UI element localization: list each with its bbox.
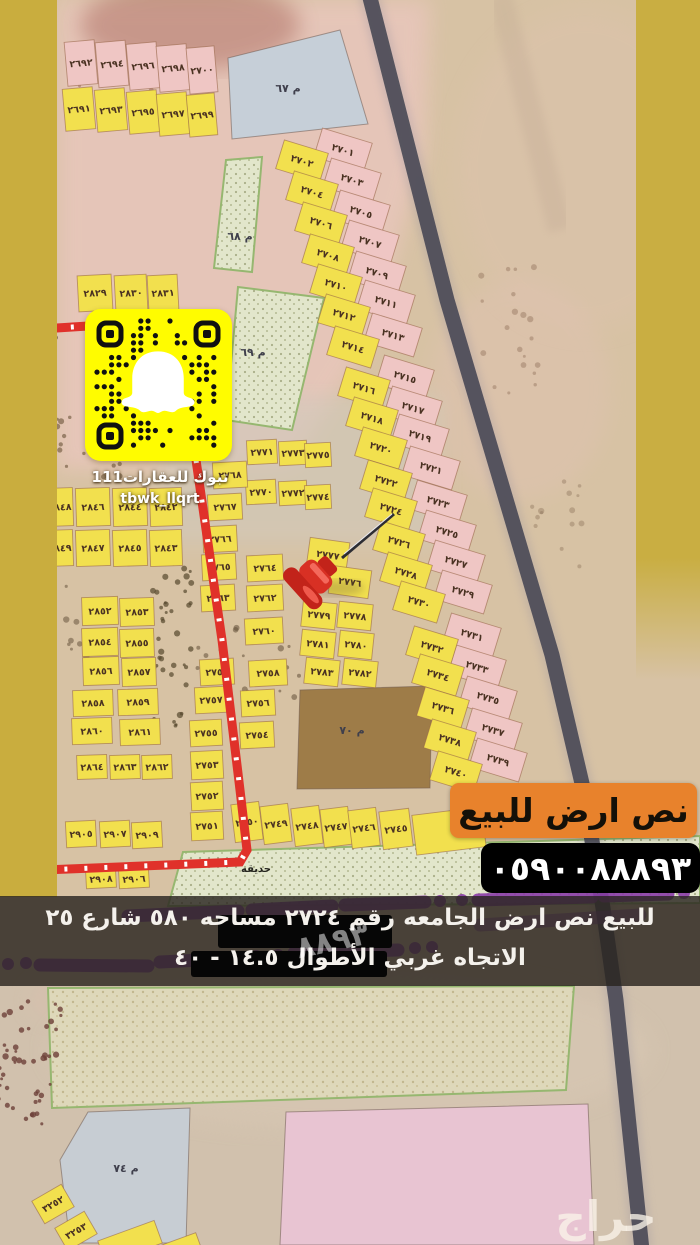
parcel-number: ٢٦٩١ xyxy=(67,103,91,116)
parcel-number: ٢٧٦٠ xyxy=(252,626,276,638)
parcel-number: ٢٧٦٢ xyxy=(253,593,277,605)
parcel-number: ٢٨٥٤ xyxy=(88,637,112,649)
parcel-number: ٢٧٥١ xyxy=(195,821,219,833)
parcel-٢٨٦٣: ٢٨٦٣ xyxy=(110,754,141,779)
parcel-٢٦٩٨: ٢٦٩٨ xyxy=(156,44,190,92)
parcel-٢٧٥٣: ٢٧٥٣ xyxy=(190,750,223,780)
parcel-٢٨٤٧: ٢٨٤٧ xyxy=(75,529,110,566)
parcel-number: ٢٨٢٩ xyxy=(83,288,107,300)
parcel-number: ٢٨٤٣ xyxy=(154,543,178,555)
parcel-٢٧٧٨: ٢٧٧٨ xyxy=(337,601,374,630)
parcel-number: ٢٩٠٧ xyxy=(103,829,127,841)
parcel-٢٩٠٧: ٢٩٠٧ xyxy=(99,820,130,848)
parcel-٢٨٦٠: ٢٨٦٠ xyxy=(72,717,113,744)
parcel-number: ٢٧٧٥ xyxy=(306,450,330,462)
parcel-number: ٢٨٥٣ xyxy=(125,607,149,619)
area-label: م ٦٧ xyxy=(275,82,300,95)
parcel-number: ٢٨٦٤ xyxy=(80,762,104,774)
snapchat-account-name: تبوك للعقارات111 xyxy=(60,468,260,486)
parcel-map: م ٦٧م ٦٨م ٦٩م ٧٠م ٧٤ ٢٦٩٢٢٦٩٤٢٦٩٦٢٦٩٨٢٧٠… xyxy=(0,0,700,1245)
parcel-٢٦٩٩: ٢٦٩٩ xyxy=(186,93,218,137)
parcel-number: ٢٨٥٦ xyxy=(89,666,113,678)
parcel-٢٧٠٠: ٢٧٠٠ xyxy=(186,46,218,94)
parcel-٢٧٤٥: ٢٧٤٥ xyxy=(379,808,413,849)
parcel-٢٦٩٧: ٢٦٩٧ xyxy=(156,92,190,136)
parcel-٢٧٤٨: ٢٧٤٨ xyxy=(291,805,323,846)
parcel-٢٨٥٩: ٢٨٥٩ xyxy=(118,688,159,715)
parcel-number: ٢٨٥٢ xyxy=(88,606,112,618)
parcel-٢٦٩٥: ٢٦٩٥ xyxy=(126,90,160,134)
parcel-number: ٢٦٩٦ xyxy=(131,60,155,73)
parcel-number: ٢٨٦٠ xyxy=(80,726,104,738)
parcel-٢٨٥٧: ٢٨٥٧ xyxy=(122,657,157,686)
parcel-٢٨٣٠: ٢٨٣٠ xyxy=(114,274,148,312)
parcel-٢٨٢٩: ٢٨٢٩ xyxy=(77,274,113,312)
parcel-number: ٢٦٩٢ xyxy=(69,57,93,70)
parcel-number: ٢٧٥٢ xyxy=(195,791,219,803)
parcel-number: ٢٩٠٦ xyxy=(122,874,146,886)
area-block-70: م ٧٠ xyxy=(297,686,432,789)
parcel-٢٧٨١: ٢٧٨١ xyxy=(300,629,337,658)
area-sand-parcel xyxy=(48,986,574,1108)
parcel-٢٧٧٤: ٢٧٧٤ xyxy=(304,484,331,509)
parcel-٢٧٦٢: ٢٧٦٢ xyxy=(246,584,283,612)
parcel-number: ٢٧٥٨ xyxy=(256,668,280,680)
parcel-number: ٢٩٠٩ xyxy=(135,830,159,842)
parcel-number: ٢٦٩٩ xyxy=(190,109,214,122)
parcel-number: ٢٧٦٤ xyxy=(253,563,277,575)
parcel-number: ٢٨٦١ xyxy=(128,727,152,739)
parcel-number: ٢٧٥٣ xyxy=(195,760,219,772)
parcel-٢٧٧٢: ٢٧٧٢ xyxy=(278,480,307,505)
parcel-٢٧٨٢: ٢٧٨٢ xyxy=(342,658,379,687)
parcel-number: ٢٨٣١ xyxy=(151,288,175,300)
area-label: م ٦٩ xyxy=(240,346,265,359)
qr-pattern xyxy=(85,309,232,461)
parcel-number: ٢٧٥٧ xyxy=(199,695,223,707)
parcel-٢٨٥٤: ٢٨٥٤ xyxy=(82,627,119,656)
parcel-number: ٢٧٧٤ xyxy=(306,492,330,504)
parcel-٢٧٤٦: ٢٧٤٦ xyxy=(348,807,380,848)
parcel-٢٩٠٦: ٢٩٠٦ xyxy=(119,869,150,889)
parcel-٢٧٥١: ٢٧٥١ xyxy=(190,811,223,841)
parcel-٢٨٥٦: ٢٨٥٦ xyxy=(83,656,120,685)
description-banner: للبيع نص ارض الجامعه رقم ٢٧٢٤ مساحه ٥٨٠ … xyxy=(0,896,700,986)
parcel-٢٦٩٢: ٢٦٩٢ xyxy=(64,40,98,86)
park-label: حديقه xyxy=(241,864,271,875)
snapchat-ghost-icon xyxy=(122,351,195,413)
parcel-٢٨٣١: ٢٨٣١ xyxy=(147,274,179,312)
parcel-٢٦٩٦: ٢٦٩٦ xyxy=(126,42,160,90)
parcel-number: ٢٨٥٨ xyxy=(81,698,105,710)
parcel-٢٧٥٨: ٢٧٥٨ xyxy=(248,659,287,687)
parcel-٢٦٩١: ٢٦٩١ xyxy=(62,87,96,131)
parcel-٢٨٤٥: ٢٨٤٥ xyxy=(112,529,147,566)
parcel-٢٨٦٤: ٢٨٦٤ xyxy=(77,754,108,779)
parcel-number: ٢٧٥٤ xyxy=(245,730,269,742)
parcel-number: ٢٦٩٨ xyxy=(161,62,185,75)
parcel-number: ٢٨٦٣ xyxy=(113,762,137,774)
snapchat-username: tbwk_llqrt xyxy=(60,491,260,507)
parcel-number: ٢٨٥٥ xyxy=(125,638,149,650)
parcel-number: ٢٦٩٣ xyxy=(99,104,123,117)
parcel-٢٨٥٨: ٢٨٥٨ xyxy=(73,689,114,716)
parcel-number: ٢٨٤٧ xyxy=(81,543,105,555)
parcel-number: ٢٧٠٠ xyxy=(190,64,214,77)
parcel-٢٩٠٩: ٢٩٠٩ xyxy=(131,821,162,849)
listing-image: م ٦٧م ٦٨م ٦٩م ٧٠م ٧٤ ٢٦٩٢٢٦٩٤٢٦٩٦٢٦٩٨٢٧٠… xyxy=(0,0,700,1245)
parcel-٢٦٩٣: ٢٦٩٣ xyxy=(94,88,128,132)
parcel-٢٧٨٣: ٢٧٨٣ xyxy=(304,657,341,686)
parcel-٢٧٤٧: ٢٧٤٧ xyxy=(320,806,352,847)
parcel-٢٧٥٥: ٢٧٥٥ xyxy=(189,719,222,747)
area-label: م ٧٤ xyxy=(113,1162,138,1175)
haraj-watermark: حراج xyxy=(520,1192,692,1241)
phone-number: ٠٥٩٠٠٨٨٨٩٣ xyxy=(481,843,700,893)
parcel-number: ٢٨٤٥ xyxy=(118,543,142,555)
parcel-number: ٢٨٥٩ xyxy=(126,697,150,709)
area-label: م ٦٨ xyxy=(227,230,252,243)
parcel-number: ٢٧٧٣ xyxy=(281,448,305,460)
parcel-٢٧٥٦: ٢٧٥٦ xyxy=(240,689,275,717)
parcel-٢٨٦٢: ٢٨٦٢ xyxy=(142,754,173,779)
parcel-٢٧٧٥: ٢٧٧٥ xyxy=(304,442,331,467)
parcel-٢٧٤٩: ٢٧٤٩ xyxy=(260,803,292,844)
parcel-٢٧٦٤: ٢٧٦٤ xyxy=(246,554,283,582)
parcel-number: ٢٦٩٥ xyxy=(131,106,155,119)
parcel-number: ٢٧٧٢ xyxy=(281,488,305,500)
parcel-٢٧٧١: ٢٧٧١ xyxy=(246,439,277,465)
parcel-٢٨٦١: ٢٨٦١ xyxy=(120,718,161,745)
parcel-٢٨٥٣: ٢٨٥٣ xyxy=(120,597,155,626)
parcel-number: ٢٨٦٢ xyxy=(145,762,169,774)
area-label: م ٧٠ xyxy=(339,724,364,737)
parcel-٢٧٨٠: ٢٧٨٠ xyxy=(338,630,375,659)
parcel-number: ٢٧٧١ xyxy=(250,447,274,459)
parcel-number: ٢٨٥٧ xyxy=(127,667,151,679)
parcel-٢٧٥٢: ٢٧٥٢ xyxy=(190,781,223,811)
parcel-٢٨٤٣: ٢٨٤٣ xyxy=(149,529,182,566)
parcel-number: ٢٨٣٠ xyxy=(119,288,143,300)
parcel-٢٨٥٥: ٢٨٥٥ xyxy=(120,628,155,657)
snapchat-code xyxy=(85,309,232,461)
parcel-number: ٢٧٥٦ xyxy=(246,698,270,710)
parcel-٢٧٦٠: ٢٧٦٠ xyxy=(244,617,283,645)
parcel-number: ٢٦٩٧ xyxy=(161,108,185,121)
parcel-٢٧٥٧: ٢٧٥٧ xyxy=(194,686,227,714)
parcel-٢٧٥٤: ٢٧٥٤ xyxy=(239,721,274,749)
parcel-٢٩٠٥: ٢٩٠٥ xyxy=(65,820,96,848)
parcel-٢٨٥٢: ٢٨٥٢ xyxy=(82,596,119,625)
parcel-number: ٢٩٠٥ xyxy=(69,829,93,841)
sale-banner: نص ارض للبيع xyxy=(450,783,697,838)
parcel-٢٧٧٣: ٢٧٧٣ xyxy=(278,440,307,465)
parcel-number: ٢٩٠٨ xyxy=(89,874,113,886)
parcel-number: ٢٧٥٥ xyxy=(194,728,218,740)
parcel-٢٦٩٤: ٢٦٩٤ xyxy=(95,40,129,87)
parcel-number: ٢٦٩٤ xyxy=(100,58,124,71)
